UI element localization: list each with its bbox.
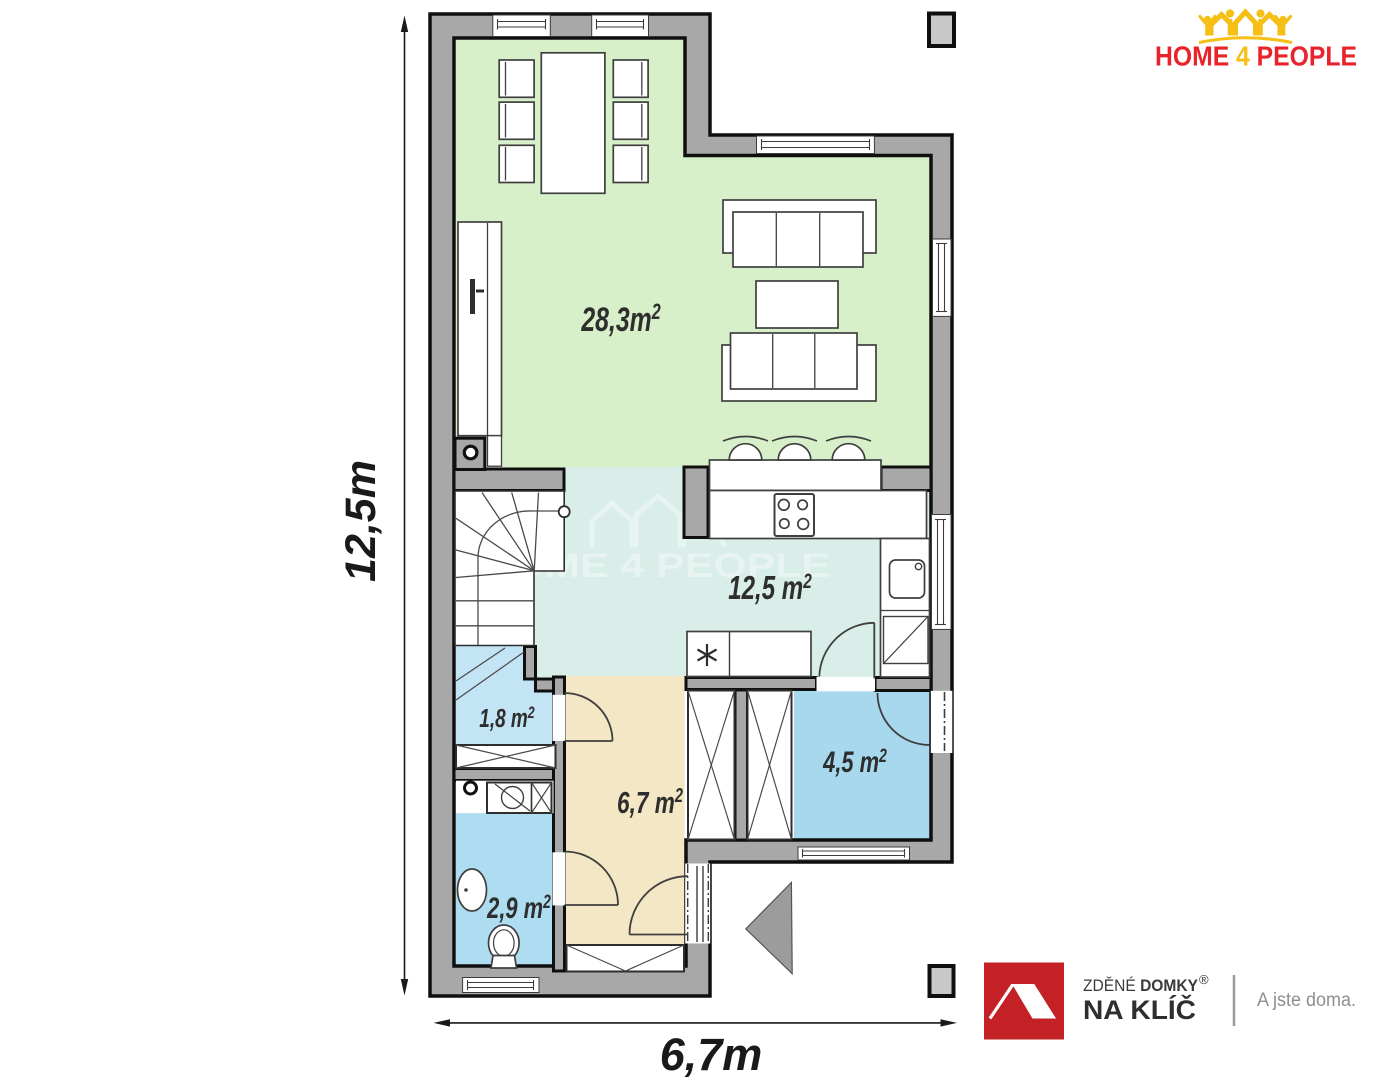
svg-text:ZDĚNÉ DOMKY: ZDĚNÉ DOMKY [1083,976,1199,995]
svg-text:28,3m2: 28,3m2 [581,301,661,339]
svg-text:6,7m: 6,7m [660,1029,763,1080]
svg-text:2,9 m2: 2,9 m2 [486,891,551,925]
svg-text:4,5 m2: 4,5 m2 [822,745,887,779]
svg-text:1,8 m2: 1,8 m2 [479,703,535,733]
svg-text:12,5m: 12,5m [337,460,385,582]
svg-text:6,7 m2: 6,7 m2 [617,784,683,820]
svg-text:HOME 4 PEOPLE: HOME 4 PEOPLE [1155,41,1357,72]
svg-text:®: ® [1199,972,1209,987]
svg-text:12,5 m2: 12,5 m2 [728,569,812,607]
svg-text:NA KLÍČ: NA KLÍČ [1083,994,1196,1025]
svg-text:A jste doma.: A jste doma. [1257,990,1356,1011]
